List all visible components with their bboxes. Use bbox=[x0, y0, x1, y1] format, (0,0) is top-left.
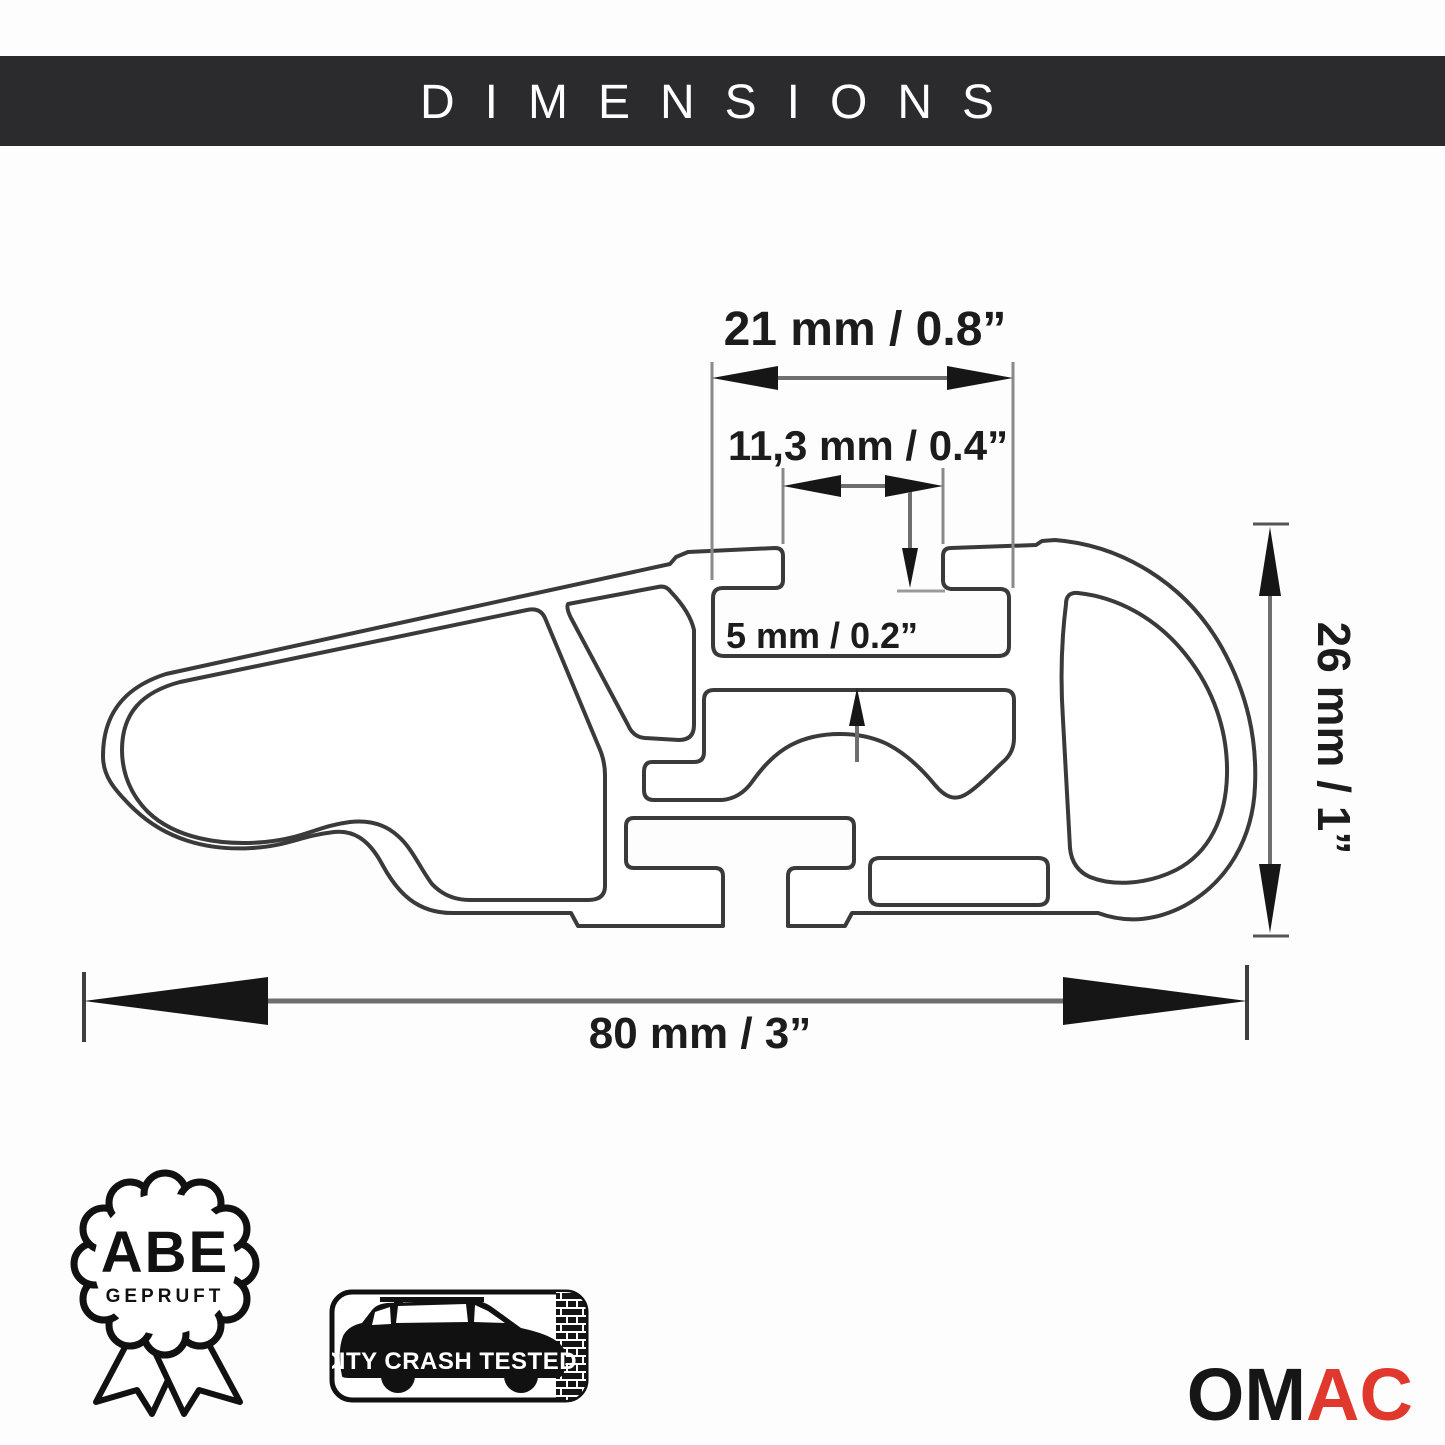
cavity-right-foot bbox=[870, 858, 1048, 905]
arrowhead-down bbox=[902, 548, 918, 588]
label-top-channel-width: 21 mm / 0.8” bbox=[724, 303, 1007, 356]
arrowhead-80-right bbox=[1063, 977, 1247, 1025]
cavity-nose bbox=[122, 609, 605, 900]
arrowhead-113-left bbox=[783, 475, 841, 497]
page-title: DIMENSIONS bbox=[420, 76, 1024, 129]
dimensions-diagram: DIMENSIONS bbox=[0, 0, 1445, 1445]
dim-21mm: 21 mm / 0.8” bbox=[712, 303, 1013, 390]
label-slot-depth: 5 mm / 0.2” bbox=[726, 615, 918, 656]
abe-badge-title: ABE bbox=[101, 1220, 229, 1285]
label-bar-height: 26 mm / 1” bbox=[1308, 622, 1360, 855]
arrowhead-21-right bbox=[947, 366, 1013, 390]
crash-badge-label: CITY CRASH TESTED bbox=[321, 1348, 577, 1375]
brand-logo-black: OM bbox=[1187, 1353, 1306, 1436]
brand-logo: OM AC bbox=[1187, 1353, 1413, 1436]
crossbar-profile-drawing bbox=[103, 540, 1255, 926]
arrowhead-21-left bbox=[712, 366, 778, 390]
abe-badge-subtitle: GEPRUFT bbox=[106, 1286, 225, 1307]
brand-logo-red: AC bbox=[1306, 1353, 1413, 1436]
abe-badge: ABE GEPRUFT bbox=[74, 1173, 256, 1414]
dim-113mm: 11,3 mm / 0.4” bbox=[728, 422, 1008, 497]
arrowhead-113-right bbox=[885, 475, 943, 497]
abe-rosette: ABE GEPRUFT bbox=[74, 1173, 256, 1355]
product-dimensions-image: DIMENSIONS bbox=[0, 0, 1445, 1445]
header-bar: DIMENSIONS bbox=[0, 56, 1445, 146]
crash-tested-badge: CITY CRASH TESTED bbox=[321, 1292, 586, 1400]
label-slot-opening-width: 11,3 mm / 0.4” bbox=[728, 422, 1008, 469]
label-bar-total-width: 80 mm / 3” bbox=[589, 1009, 812, 1058]
dim-26mm: 26 mm / 1” bbox=[1259, 527, 1360, 933]
arrowhead-26-bottom bbox=[1259, 864, 1281, 933]
arrowhead-26-top bbox=[1259, 527, 1281, 596]
arrowhead-80-left bbox=[84, 977, 268, 1025]
dim-80mm: 80 mm / 3” bbox=[84, 977, 1247, 1058]
